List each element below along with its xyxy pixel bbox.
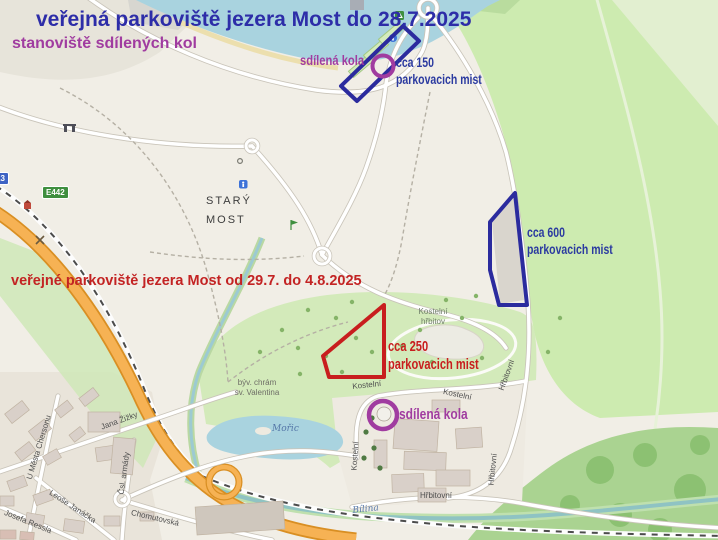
bike-label-bottom: sdílená kola: [399, 407, 468, 424]
parking-150-label: cca 150 parkovacich mist: [396, 54, 482, 88]
parking-150-line1: cca 150: [396, 54, 482, 71]
road-shield-13: 13: [0, 172, 9, 185]
subtitle-bikes: stanoviště sdílených kol: [12, 35, 197, 53]
cemetery-line1: Kostelní: [405, 307, 461, 317]
road-shield-e442: E442: [42, 186, 69, 199]
parking-150-line2: parkovacich mist: [396, 71, 482, 88]
place-line1: STARÝ: [206, 192, 252, 211]
pond-label: Mořic: [272, 424, 299, 434]
church-tower: [377, 407, 391, 421]
title-red: veřejné parkoviště jezera Most od 29.7. …: [11, 273, 362, 289]
parking-250-line2: parkovacich mist: [388, 356, 479, 374]
parking-600-line2: parkovacich mist: [527, 241, 613, 258]
parking-250-line1: cca 250: [388, 338, 479, 356]
parking-600-label: cca 600 parkovacich mist: [527, 224, 613, 258]
cemetery-label: Kostelní hřbitov: [405, 307, 461, 327]
place-label-stary-most: STARÝ MOST: [206, 192, 252, 230]
parking-250-label: cca 250 parkovacich mist: [388, 338, 479, 374]
parking-600-line1: cca 600: [527, 224, 613, 241]
street-hrbitovni-h: Hřbitovní: [420, 492, 452, 501]
title-blue: veřejná parkoviště jezera Most do 28.7.2…: [36, 8, 471, 32]
bike-label-top: sdílená kola: [300, 53, 364, 69]
church-line1: býv. chrám: [228, 378, 286, 388]
info-board-icon: [239, 180, 248, 189]
place-line2: MOST: [206, 211, 252, 230]
map-canvas[interactable]: veřejná parkoviště jezera Most do 28.7.2…: [0, 0, 718, 540]
church-label: býv. chrám sv. Valentina: [228, 378, 286, 398]
cemetery-line2: hřbitov: [405, 317, 461, 327]
church-line2: sv. Valentina: [228, 388, 286, 398]
